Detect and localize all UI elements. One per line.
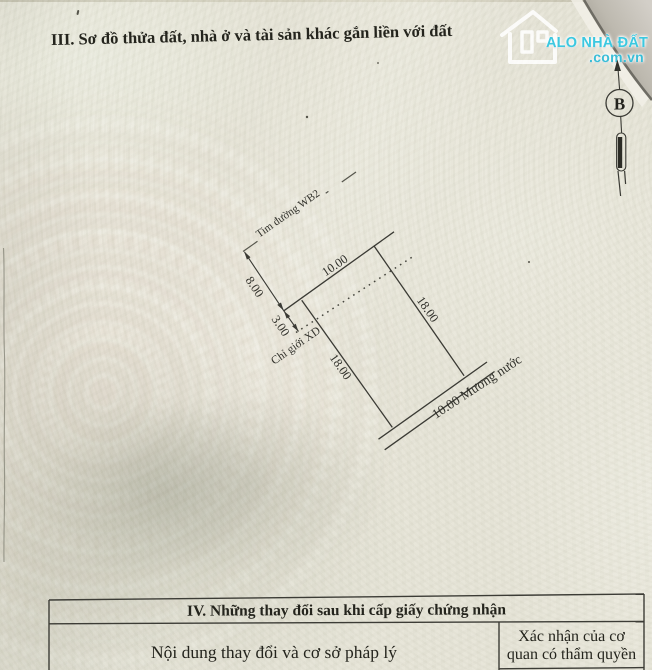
svg-text:10.00 Mương nước: 10.00 Mương nước <box>429 352 524 422</box>
svg-text:B: B <box>614 95 625 114</box>
svg-text:8.00: 8.00 <box>243 274 267 300</box>
svg-text:Tim đường WB2: Tim đường WB2 <box>254 188 322 241</box>
svg-text:18.00: 18.00 <box>327 351 355 382</box>
